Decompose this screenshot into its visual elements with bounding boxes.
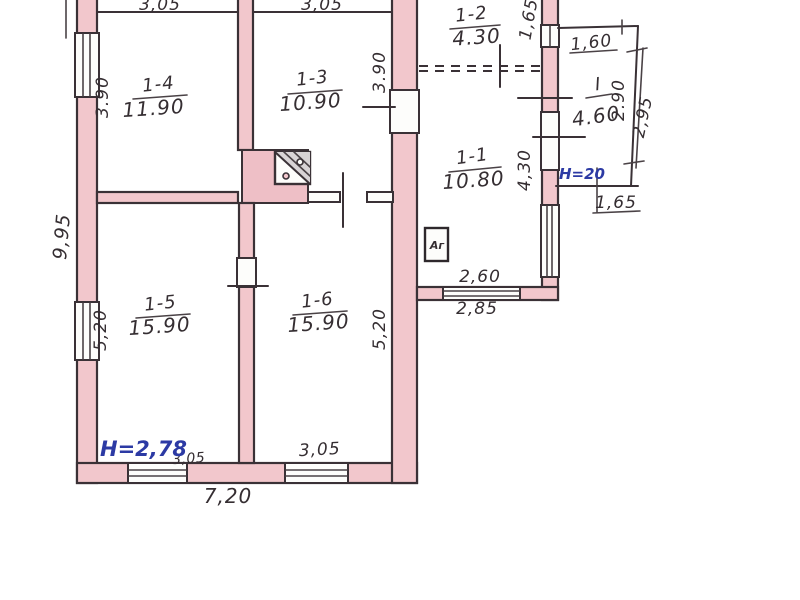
note-height-main: Н=2,78 [100, 437, 187, 461]
room-label-1-5: 1-5 15.90 [128, 291, 192, 340]
dim-top-1-3: 3,05 [301, 0, 343, 15]
svg-text:1-1: 1-1 [455, 144, 490, 169]
room-label-1-1: 1-1 10.80 [442, 144, 506, 194]
svg-text:I: I [594, 74, 603, 96]
room-label-1-6: 1-6 15.90 [287, 288, 351, 337]
door-room-1-5-to-1-6 [228, 258, 268, 287]
dim-bottom-total: 7,20 [204, 484, 253, 508]
appliance-label: Аг [429, 239, 446, 252]
svg-text:1-4: 1-4 [141, 72, 175, 96]
dim-bottom-1-6: 3,05 [298, 439, 341, 461]
dim-top-1-4: 3,05 [139, 0, 181, 15]
svg-text:1-5: 1-5 [143, 291, 177, 315]
wall-right-main [392, 0, 417, 483]
dim-wing-1-2: 1,65 [516, 0, 543, 41]
dim-left-1-4: 3.90 [93, 76, 113, 118]
room-label-1-3: 1-3 10.90 [279, 66, 343, 116]
note-height-porch: Н=20 [559, 165, 605, 183]
dim-porch-bottom: 1,65 [595, 193, 637, 213]
svg-text:15.90: 15.90 [128, 312, 192, 340]
dim-wing-1-1: 4,30 [515, 149, 535, 191]
window-right-room-1-1 [541, 205, 559, 277]
svg-text:10.80: 10.80 [442, 166, 506, 194]
dim-right-1-6: 5,20 [370, 308, 390, 350]
door-room-1-3-to-1-6 [308, 173, 393, 227]
room-label-1-2: 1-2 4.30 [450, 2, 502, 50]
svg-text:1-6: 1-6 [300, 288, 334, 312]
window-bottom-room-1-6 [285, 463, 348, 483]
wall-partition-1-4-1-5 [97, 192, 238, 203]
wall-mid-lower [239, 203, 254, 463]
dim-left-1-5: 5,20 [91, 309, 111, 351]
dim-tick [624, 161, 644, 164]
dim-left-total: 9,95 [49, 212, 75, 260]
appliance-box: Аг [425, 228, 448, 261]
svg-text:1-2: 1-2 [454, 2, 488, 26]
partition-1-2-1-1-dashed [419, 45, 542, 87]
room-label-1-4: 1-4 11.90 [122, 72, 187, 122]
stove-icon [275, 152, 310, 184]
dim-right-1-3: 3.90 [370, 51, 390, 93]
svg-text:1-3: 1-3 [295, 66, 329, 90]
dim-wing-bottom-inner: 2,60 [459, 267, 501, 287]
svg-text:4.30: 4.30 [451, 23, 501, 50]
floor-plan-svg: Аг 1-4 11.90 1-3 10.90 1-2 4.30 1-1 10.8… [0, 0, 800, 600]
dim-wing-bottom-outer: 2,85 [456, 299, 498, 319]
door-room-1-3-to-1-1 [363, 90, 419, 133]
dim-porch-side-outer: 2,95 [629, 94, 657, 139]
dim-porch-side-inner: 2.90 [609, 79, 629, 121]
wall-mid-upper [238, 0, 253, 150]
svg-text:15.90: 15.90 [287, 309, 351, 337]
top-wall-edge [66, 0, 392, 38]
window-right-room-1-2 [541, 25, 559, 47]
scanned-floor-plan-page: Аг 1-4 11.90 1-3 10.90 1-2 4.30 1-1 10.8… [0, 0, 800, 600]
svg-text:11.90: 11.90 [122, 94, 186, 122]
interior-walls [97, 0, 308, 463]
svg-text:10.90: 10.90 [279, 88, 343, 116]
